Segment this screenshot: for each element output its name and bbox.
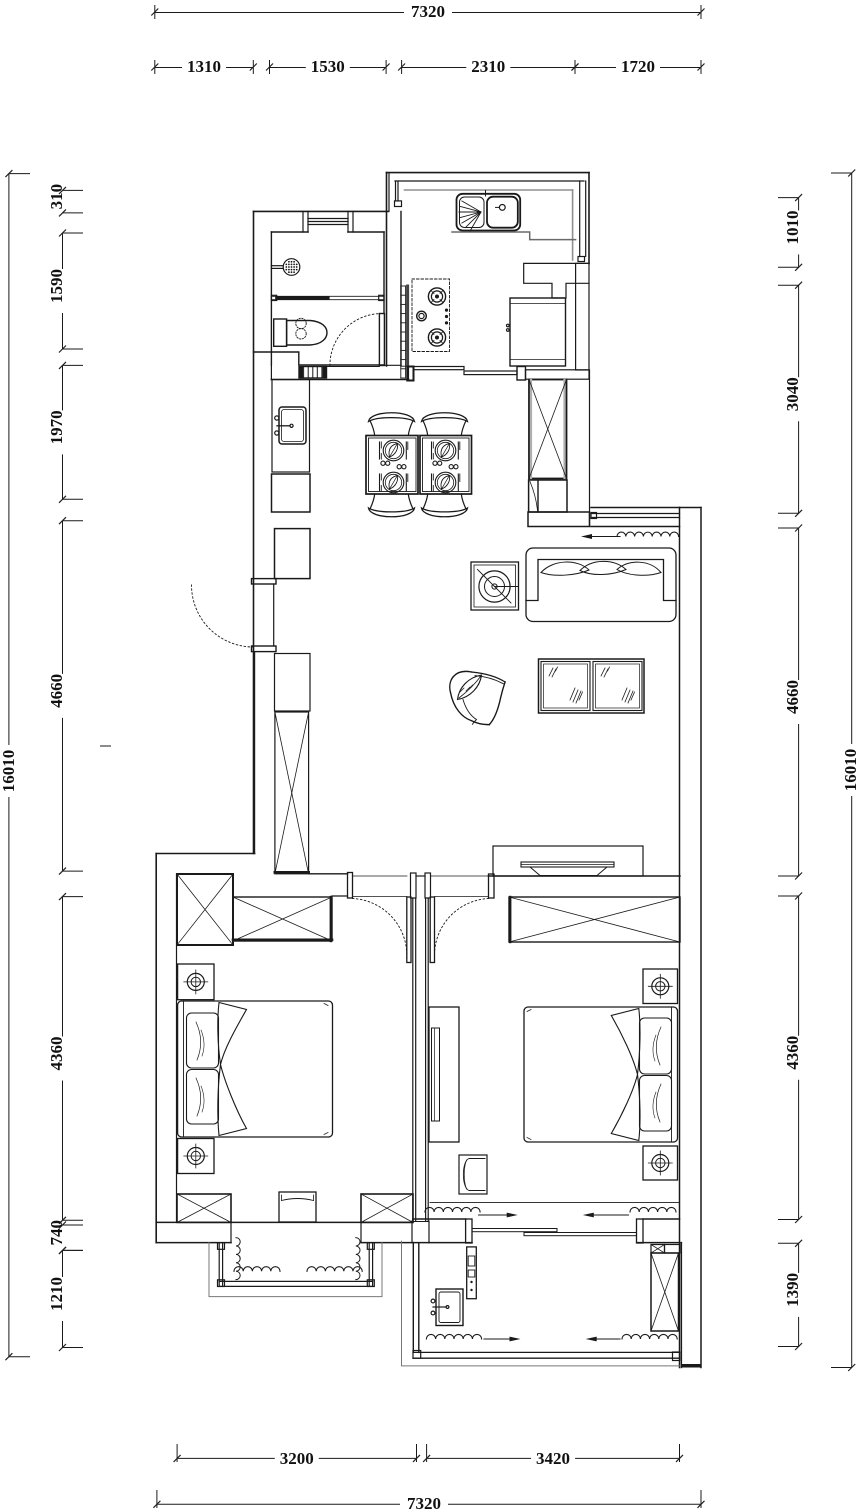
svg-text:16010: 16010	[0, 750, 18, 793]
svg-text:1720: 1720	[621, 57, 655, 76]
svg-text:1530: 1530	[311, 57, 345, 76]
svg-text:1210: 1210	[47, 1277, 66, 1311]
svg-text:7320: 7320	[411, 2, 445, 21]
svg-text:3420: 3420	[536, 1449, 570, 1468]
svg-text:310: 310	[47, 184, 66, 210]
svg-text:1010: 1010	[783, 210, 802, 244]
svg-text:4360: 4360	[47, 1036, 66, 1070]
svg-text:4660: 4660	[783, 680, 802, 714]
svg-text:16010: 16010	[841, 749, 860, 792]
svg-text:7320: 7320	[407, 1494, 441, 1512]
svg-text:1310: 1310	[187, 57, 221, 76]
svg-text:3200: 3200	[280, 1449, 314, 1468]
svg-text:3040: 3040	[783, 377, 802, 411]
svg-text:740: 740	[47, 1220, 66, 1246]
svg-text:1390: 1390	[783, 1273, 802, 1307]
svg-text:4360: 4360	[783, 1036, 802, 1070]
svg-text:1970: 1970	[47, 410, 66, 444]
svg-text:1590: 1590	[47, 269, 66, 303]
svg-text:2310: 2310	[471, 57, 505, 76]
svg-text:4660: 4660	[47, 674, 66, 708]
